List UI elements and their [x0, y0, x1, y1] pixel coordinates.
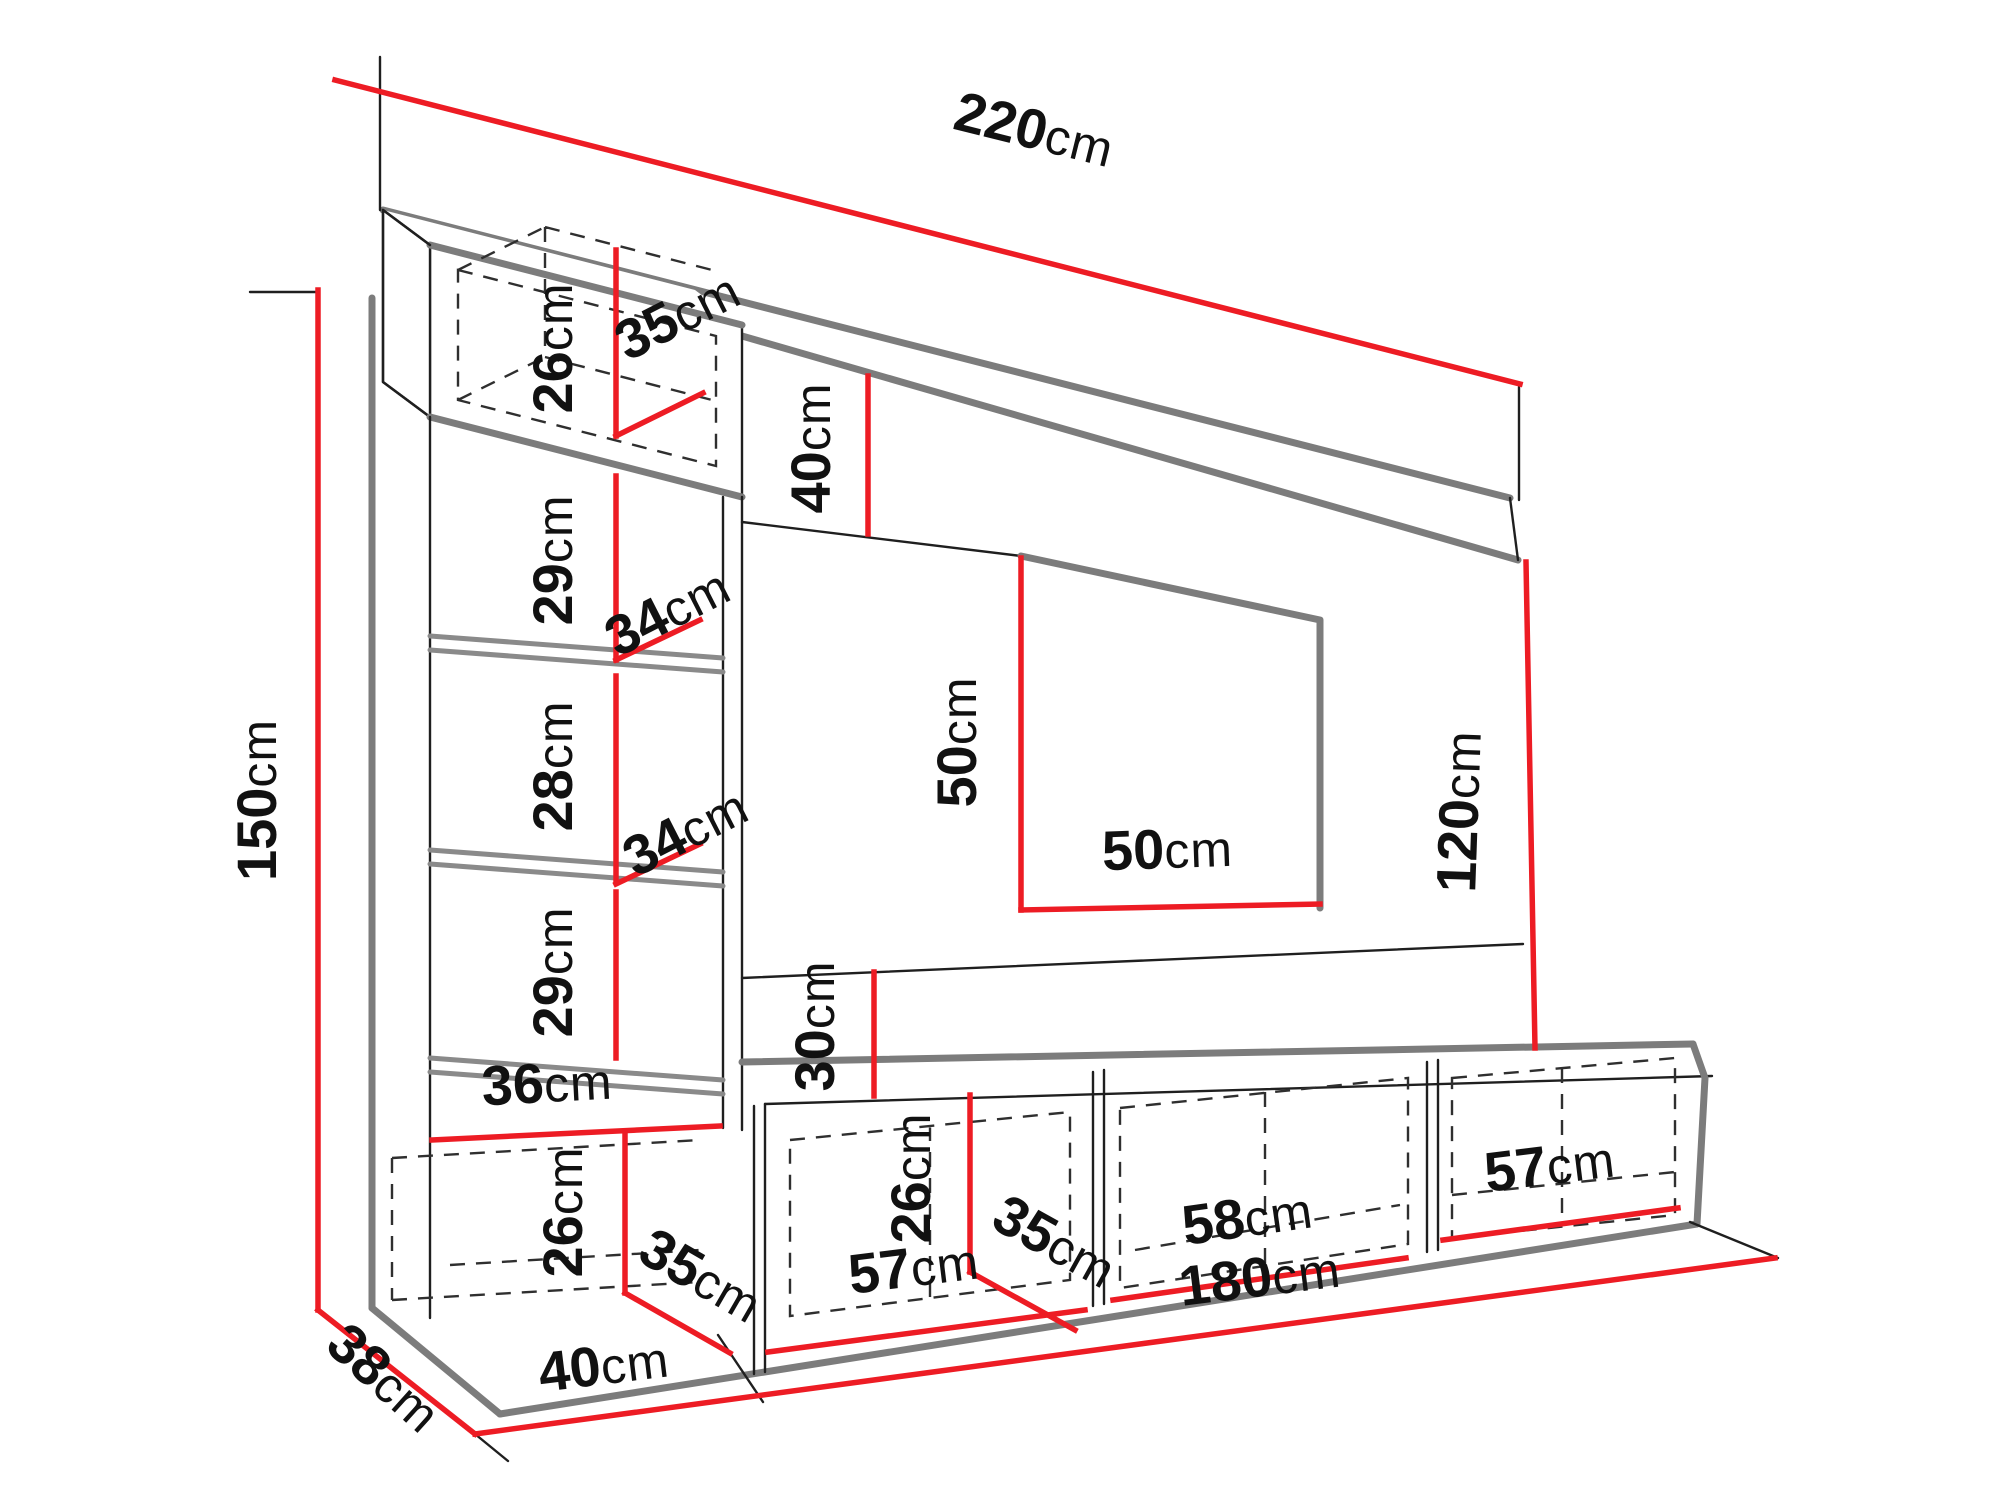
base-row-left-cap — [754, 1104, 765, 1374]
svg-text:120cm: 120cm — [1424, 729, 1493, 893]
svg-text:50cm: 50cm — [1101, 815, 1234, 883]
dim-tv-opening-height: 50cm — [925, 558, 1021, 910]
diagram-canvas: 220cm 150cm 26cm 35cm 40cm 29cm 34cm 28c… — [0, 0, 2000, 1500]
dim-shelf-opening-2-height: 28cm — [521, 676, 616, 880]
svg-text:29cm: 29cm — [521, 495, 584, 626]
wall-unit-dimension-drawing: 220cm 150cm 26cm 35cm 40cm 29cm 34cm 28c… — [0, 0, 2000, 1500]
dim-left-base-cabinet-depth: 35cm — [625, 1215, 774, 1353]
svg-text:35cm: 35cm — [629, 1215, 774, 1335]
svg-text:26cm: 26cm — [531, 1147, 594, 1278]
dim-top-panel-gap-height: 40cm — [779, 376, 868, 534]
base-row-top-back-edge — [742, 1044, 1693, 1062]
dim-left-base-cabinet-height: 26cm — [531, 1133, 625, 1293]
dim-shelf-opening-3-height: 29cm — [521, 892, 616, 1058]
top-panel-bottom-edge — [742, 336, 1518, 560]
svg-text:40cm: 40cm — [779, 383, 842, 514]
dim-overall-height: 150cm — [225, 290, 318, 1310]
svg-text:36cm: 36cm — [480, 1048, 614, 1118]
svg-text:58cm: 58cm — [1178, 1176, 1316, 1257]
mid-panel-joint-upper — [742, 522, 1021, 556]
base-row-top-front-edge — [765, 1076, 1712, 1104]
svg-text:29cm: 29cm — [521, 907, 584, 1038]
svg-text:50cm: 50cm — [925, 677, 988, 808]
svg-text:35cm: 35cm — [983, 1182, 1128, 1301]
dim-back-gap-height: 30cm — [783, 961, 874, 1096]
svg-text:220cm: 220cm — [948, 79, 1121, 179]
dim-tv-opening-width: 50cm — [1021, 815, 1320, 910]
base-row-right-edge — [1693, 1044, 1705, 1224]
svg-text:38cm: 38cm — [315, 1310, 454, 1444]
dim-right-panel-height: 120cm — [1424, 562, 1535, 1048]
dim-base-cabinet-3-width: 57cm — [1443, 1125, 1678, 1240]
svg-text:30cm: 30cm — [783, 961, 846, 1092]
base-row-divider-2 — [1427, 1060, 1438, 1252]
top-panel-right-cap — [1510, 498, 1518, 560]
dim-shelf-opening-1-height: 29cm — [521, 476, 616, 660]
svg-text:26cm: 26cm — [521, 283, 584, 414]
svg-text:26cm: 26cm — [879, 1113, 942, 1244]
svg-text:150cm: 150cm — [225, 719, 288, 881]
svg-text:57cm: 57cm — [1481, 1125, 1619, 1203]
svg-text:28cm: 28cm — [521, 701, 584, 832]
mid-panel-joint-lower — [742, 944, 1523, 978]
